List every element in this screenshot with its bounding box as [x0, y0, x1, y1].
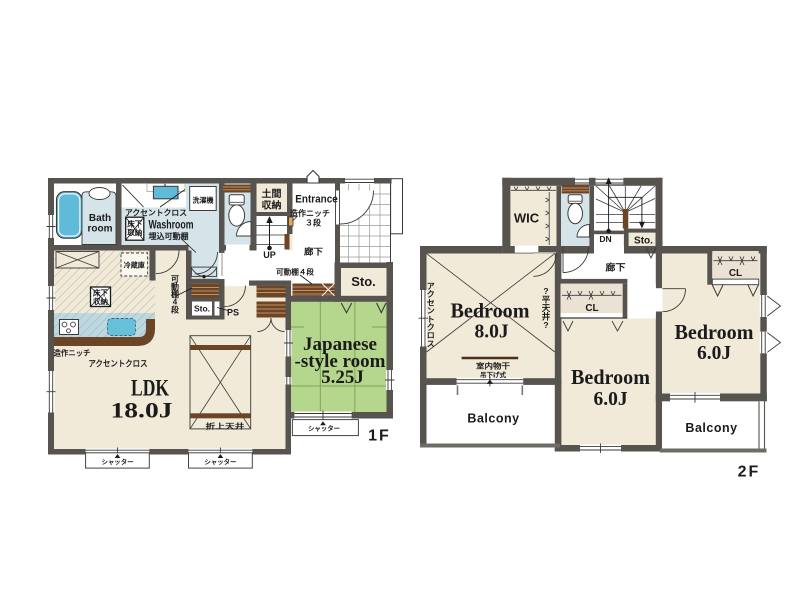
svg-text:可動棚４段: 可動棚４段: [276, 267, 315, 277]
svg-text:室内物干: 室内物干: [476, 361, 511, 371]
svg-text:?: ?: [543, 320, 548, 330]
svg-text:収納: 収納: [262, 200, 282, 212]
svg-text:Bedroom: Bedroom: [571, 365, 650, 389]
svg-text:Sto.: Sto.: [351, 274, 376, 289]
svg-text:Bedroom: Bedroom: [451, 299, 530, 323]
svg-text:アクセントクロス: アクセントクロス: [89, 359, 148, 369]
svg-text:廊下: 廊下: [606, 262, 626, 273]
svg-text:造作ニッチ: 造作ニッチ: [54, 348, 91, 358]
svg-text:Washroom: Washroom: [149, 218, 194, 232]
svg-text:段: 段: [171, 304, 179, 314]
svg-text:UP: UP: [263, 250, 276, 260]
svg-text:取納: 取納: [127, 227, 142, 237]
svg-text:CL: CL: [585, 303, 598, 314]
svg-text:8.0J: 8.0J: [474, 322, 508, 343]
svg-text:シャッター: シャッター: [308, 424, 340, 433]
svg-text:room: room: [88, 224, 113, 235]
svg-text:収納: 収納: [93, 296, 108, 306]
svg-text:5.25J: 5.25J: [321, 367, 364, 388]
svg-text:PS: PS: [227, 308, 239, 318]
svg-text:WIC: WIC: [514, 211, 540, 226]
svg-text:シャッター: シャッター: [204, 457, 236, 466]
svg-text:Balcony: Balcony: [685, 421, 737, 435]
svg-text:Entrance: Entrance: [295, 194, 338, 206]
svg-text:6.0J: 6.0J: [697, 343, 731, 364]
svg-text:DN: DN: [599, 234, 611, 244]
svg-text:埋込可動棚: 埋込可動棚: [149, 231, 189, 241]
svg-text:1F: 1F: [368, 428, 391, 445]
svg-text:造作ニッチ: 造作ニッチ: [290, 208, 330, 218]
svg-text:吊下げ式: 吊下げ式: [480, 370, 507, 379]
svg-text:2F: 2F: [738, 464, 761, 481]
svg-text:床下: 床下: [127, 219, 142, 229]
svg-text:Bath: Bath: [89, 213, 111, 224]
svg-text:6.0J: 6.0J: [593, 389, 627, 410]
svg-text:折上天井: 折上天井: [206, 422, 245, 431]
svg-text:床下: 床下: [93, 288, 108, 298]
svg-text:CL: CL: [729, 268, 742, 279]
svg-text:廊下: 廊下: [304, 247, 324, 257]
svg-text:ス: ス: [427, 339, 435, 348]
svg-text:冷蔵庫: 冷蔵庫: [124, 261, 145, 270]
svg-text:Balcony: Balcony: [467, 412, 519, 426]
svg-text:Bedroom: Bedroom: [675, 320, 754, 344]
svg-text:３段: ３段: [305, 218, 321, 228]
svg-text:Sto.: Sto.: [194, 304, 210, 314]
svg-text:アクセントクロス: アクセントクロス: [125, 208, 187, 218]
svg-text:18.0J: 18.0J: [111, 398, 173, 423]
svg-text:シャッター: シャッター: [102, 457, 134, 466]
svg-text:土間: 土間: [262, 188, 282, 200]
svg-text:Sto.: Sto.: [634, 236, 653, 247]
svg-text:洗濯機: 洗濯機: [193, 196, 214, 205]
